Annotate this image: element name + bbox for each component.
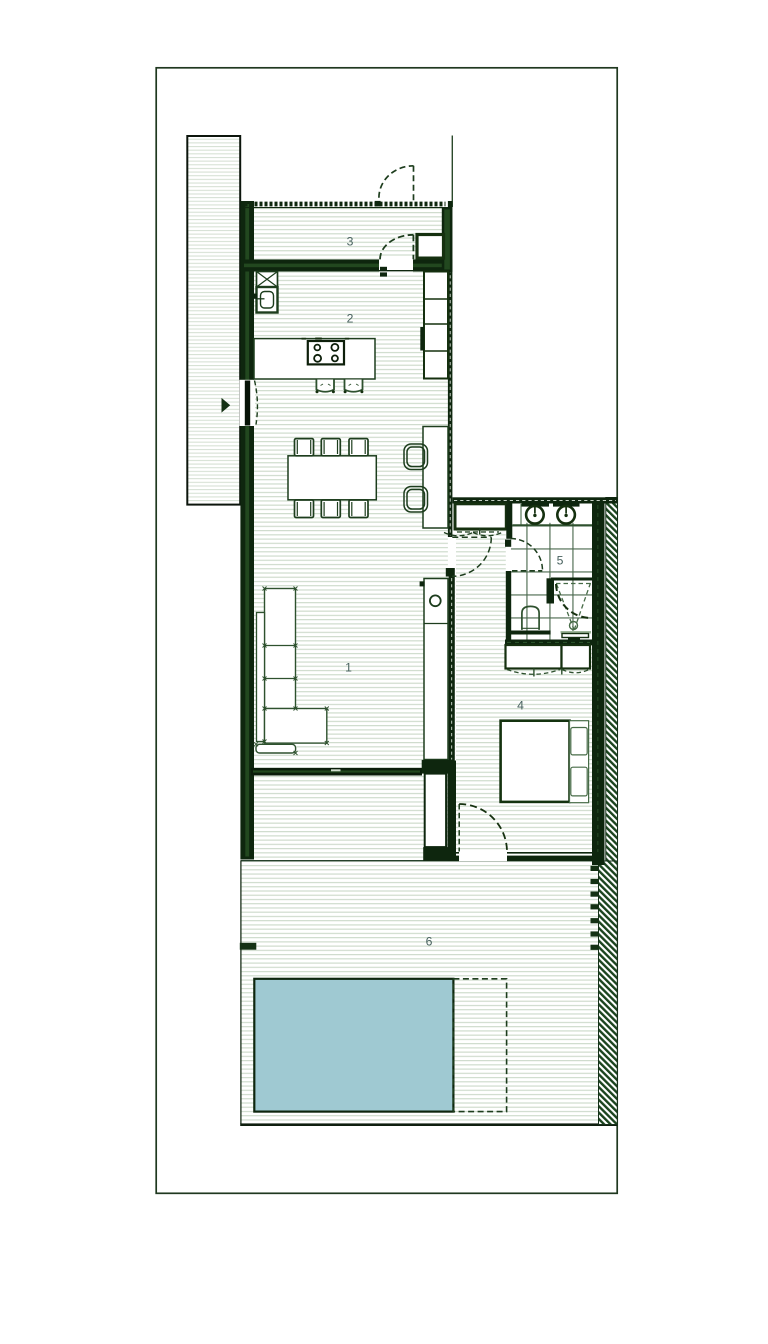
- svg-text:2: 2: [347, 312, 354, 326]
- svg-text:3: 3: [347, 235, 354, 249]
- svg-text:5: 5: [557, 554, 564, 568]
- svg-text:6: 6: [426, 935, 433, 949]
- svg-text:1: 1: [345, 661, 352, 675]
- svg-text:4: 4: [517, 699, 524, 713]
